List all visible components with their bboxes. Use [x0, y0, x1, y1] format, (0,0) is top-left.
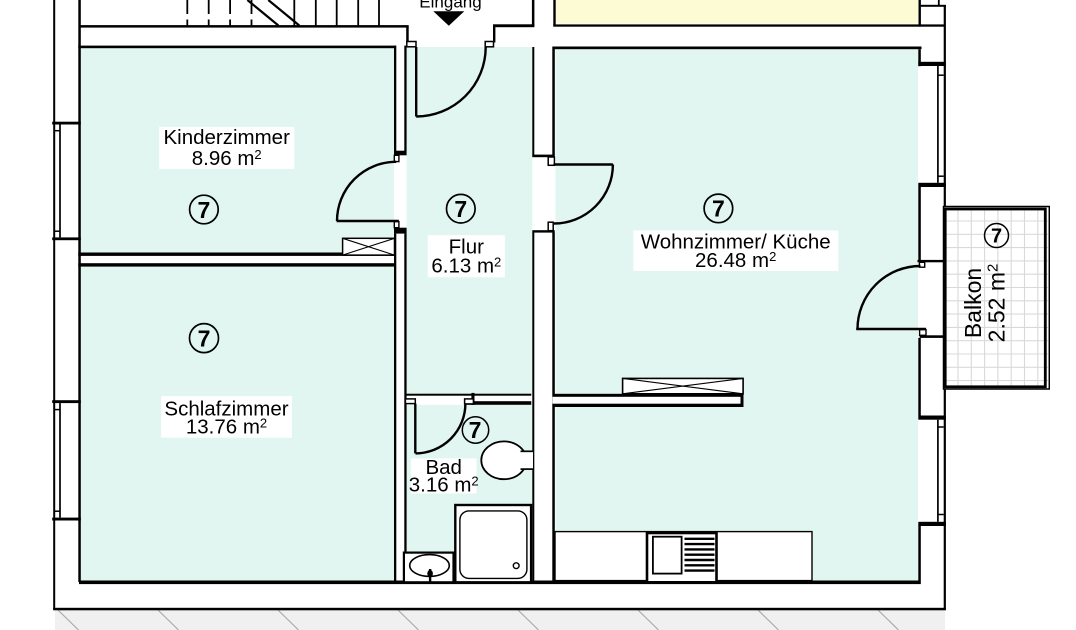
svg-text:Eingang: Eingang — [419, 0, 481, 12]
svg-text:13.76 m2: 13.76 m2 — [186, 415, 267, 438]
svg-text:7: 7 — [198, 325, 211, 351]
svg-text:Balkon: Balkon — [960, 268, 986, 338]
svg-text:7: 7 — [991, 226, 1002, 248]
svg-text:2.52 m2: 2.52 m2 — [984, 264, 1010, 343]
svg-text:Kinderzimmer: Kinderzimmer — [163, 126, 290, 149]
svg-text:3.16 m2: 3.16 m2 — [409, 473, 479, 496]
svg-text:7: 7 — [469, 417, 482, 443]
svg-text:7: 7 — [454, 196, 467, 222]
svg-text:8.96 m2: 8.96 m2 — [192, 147, 262, 170]
svg-text:6.13 m2: 6.13 m2 — [431, 255, 501, 278]
svg-text:26.48 m2: 26.48 m2 — [695, 249, 776, 272]
svg-text:7: 7 — [712, 196, 725, 222]
svg-text:7: 7 — [198, 197, 211, 223]
